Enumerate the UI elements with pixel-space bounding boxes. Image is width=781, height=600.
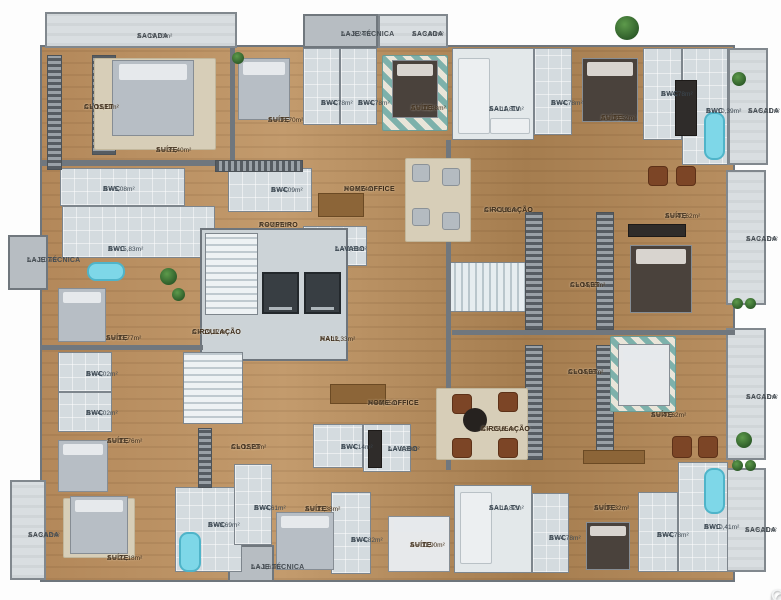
room-area: A = 4,78m² [661, 91, 693, 98]
room-area: A = 2,39m² [388, 446, 420, 453]
room-area: A = 5,21m² [748, 108, 780, 115]
room-area: A = 15,83m² [108, 246, 143, 253]
room-area: A = 2,07m² [27, 257, 59, 264]
room-area: A = 10,39m² [706, 108, 741, 115]
room-area: A = 2,82m² [335, 246, 367, 253]
room-area: A = 13,38m² [305, 506, 340, 513]
floor-plan: SACADAA = 19,20m²LAJE TÉCNICAA = 3,24m²S… [0, 0, 781, 600]
room-area: A = 4,78m² [657, 532, 689, 539]
room-area: A = 3,62m² [28, 532, 60, 539]
room-area: A = 3,80m² [412, 31, 444, 38]
room-area: A = 11,82m² [489, 505, 524, 512]
room-area: A = 7,17m² [746, 394, 778, 401]
room-area: A = 6,74m² [344, 186, 376, 193]
room-area: A = 4,78m² [549, 535, 581, 542]
room-area: A = 4,78m² [321, 100, 353, 107]
room-area: A = 13,77m² [106, 335, 141, 342]
room-area: A = 7,57m² [259, 222, 291, 229]
room-area: A = 4,78m² [551, 100, 583, 107]
room-area: A = 12,29m² [231, 444, 266, 451]
room-area: A = 4,82m² [351, 537, 383, 544]
room-area: A = 4,78m² [358, 100, 390, 107]
room-area: A = 3,24m² [341, 31, 373, 38]
room-area: A = 4,61m² [254, 505, 286, 512]
room-area: A = 16,52m² [601, 115, 636, 122]
room-area: A = 10,41m² [704, 524, 739, 531]
room-area: A = 11,90m² [410, 542, 445, 549]
room-area: A = 4,02m² [86, 371, 118, 378]
room-area: A = 11,88m² [411, 105, 446, 112]
room-area: A = 35,40m² [156, 147, 191, 154]
room-area: A = 8,69m² [208, 522, 240, 529]
room-area: A = 7,65m² [368, 400, 400, 407]
room-area: A = 14,96m² [570, 282, 605, 289]
room-area: A = 43,93m² [484, 207, 519, 214]
room-area: A = 16,70m² [268, 117, 303, 124]
room-area: A = 13,11m² [84, 104, 119, 111]
room-area: A = 16,32m² [594, 505, 629, 512]
watermark-role: Corretor de Imóveis [771, 586, 781, 600]
room-area: A = 7,17m² [746, 236, 778, 243]
room-area: A = 40,62m² [651, 412, 686, 419]
room-area: A = 35,65m² [481, 426, 516, 433]
room-area: A = 11,81m² [489, 106, 524, 113]
room-area: A = 19,20m² [137, 33, 172, 40]
room-area: A = 4,02m² [86, 410, 118, 417]
room-area: A = 5,08m² [103, 186, 135, 193]
room-area: A = 4,09m² [271, 187, 303, 194]
room-area: A = 1,62m² [251, 564, 283, 571]
room-area: A = 4,14m² [341, 444, 373, 451]
room-area: A = 12,33m² [320, 336, 355, 343]
room-labels-layer: SACADAA = 19,20m²LAJE TÉCNICAA = 3,24m²S… [0, 0, 781, 600]
room-area: A = 22,18m² [107, 555, 142, 562]
room-area: A = 19,17m² [192, 329, 227, 336]
room-area: A = 13,76m² [107, 438, 142, 445]
room-area: A = 5,21m² [745, 527, 777, 534]
room-area: A = 40,62m² [665, 213, 700, 220]
room-area: A = 14,96m² [568, 369, 603, 376]
